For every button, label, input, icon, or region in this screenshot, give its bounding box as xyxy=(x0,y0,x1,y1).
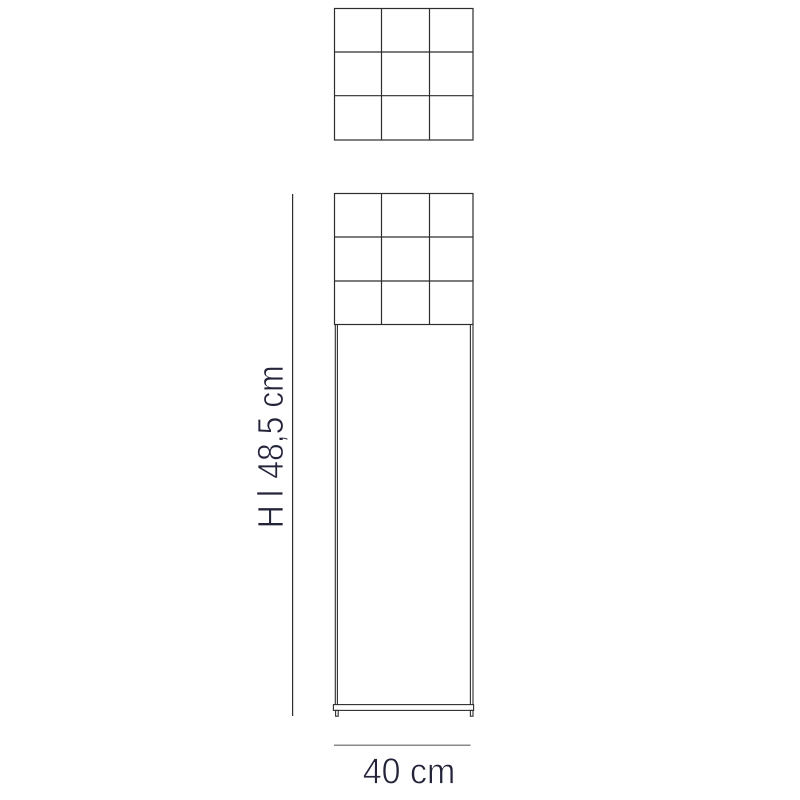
svg-text:H 48,5 cm: H 48,5 cm xyxy=(250,365,291,528)
svg-text:40 cm: 40 cm xyxy=(363,751,456,792)
